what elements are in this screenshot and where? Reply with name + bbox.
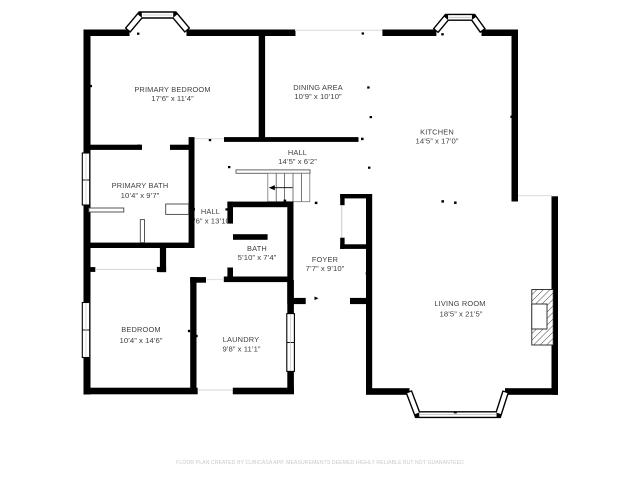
- svg-text:PRIMARY BEDROOM: PRIMARY BEDROOM: [134, 85, 210, 94]
- svg-text:10’4” x 14’6”: 10’4” x 14’6”: [120, 336, 163, 345]
- svg-text:BATH: BATH: [247, 244, 267, 253]
- svg-text:LAUNDRY: LAUNDRY: [223, 335, 259, 344]
- svg-text:5’10” x 7’4”: 5’10” x 7’4”: [238, 253, 277, 262]
- svg-text:14’5” x 17’0”: 14’5” x 17’0”: [416, 137, 459, 146]
- svg-text:10’4” x 9’7”: 10’4” x 9’7”: [121, 191, 160, 200]
- svg-text:17’6” x 11’4”: 17’6” x 11’4”: [151, 94, 194, 103]
- svg-text:HALL: HALL: [201, 207, 220, 216]
- svg-text:BEDROOM: BEDROOM: [121, 325, 160, 334]
- svg-text:HALL: HALL: [288, 148, 307, 157]
- svg-text:FOYER: FOYER: [312, 255, 338, 264]
- svg-text:3’6” x 13’10”: 3’6” x 13’10”: [190, 216, 233, 225]
- svg-text:KITCHEN: KITCHEN: [420, 128, 454, 137]
- svg-text:10’9” x 10’10”: 10’9” x 10’10”: [294, 92, 342, 101]
- svg-text:PRIMARY BATH: PRIMARY BATH: [112, 181, 169, 190]
- svg-text:18’5” x 21’5”: 18’5” x 21’5”: [440, 310, 483, 319]
- svg-text:LIVING ROOM: LIVING ROOM: [434, 299, 485, 308]
- svg-text:DINING AREA: DINING AREA: [293, 83, 343, 92]
- svg-text:9’8” x 11’1”: 9’8” x 11’1”: [222, 344, 260, 353]
- svg-text:FLOOR PLAN CREATED BY CUBICASA: FLOOR PLAN CREATED BY CUBICASA APP. MEAS…: [176, 460, 464, 466]
- svg-text:14’5” x 6’2”: 14’5” x 6’2”: [278, 157, 317, 166]
- svg-text:7’7” x 9’10”: 7’7” x 9’10”: [306, 264, 345, 273]
